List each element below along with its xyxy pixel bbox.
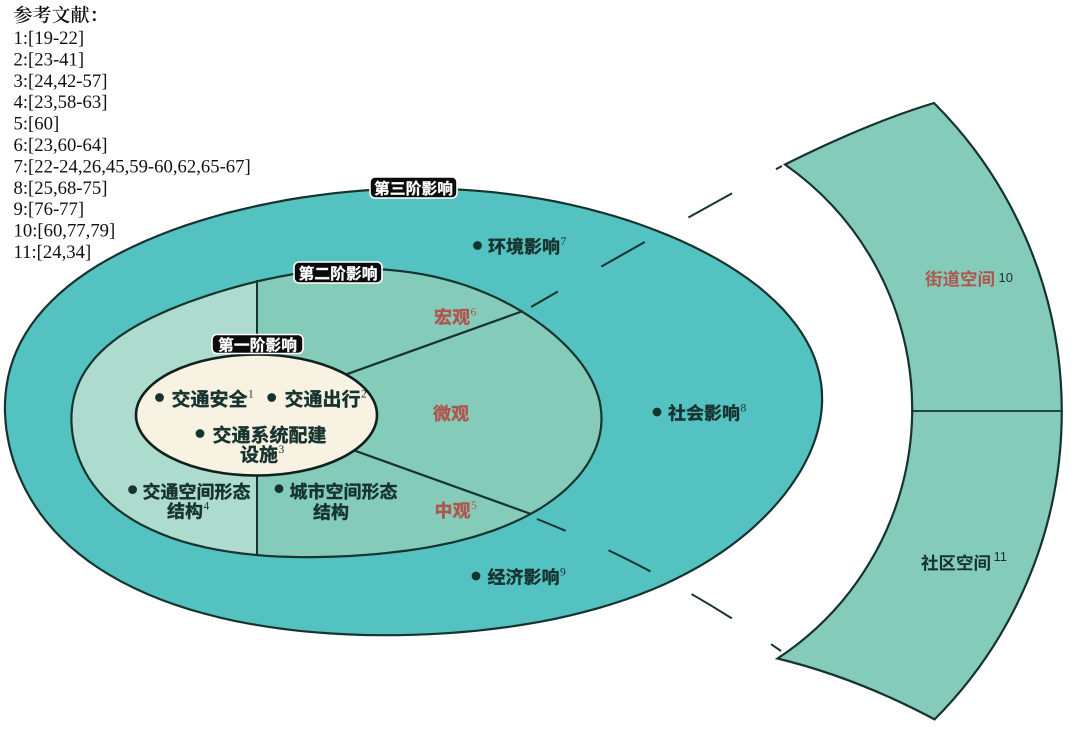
svg-text:5: 5 — [471, 500, 477, 512]
svg-text:8: 8 — [741, 403, 747, 415]
svg-text:1: 1 — [248, 389, 254, 401]
svg-text:9: 9 — [560, 567, 566, 579]
svg-text:5:[60]: 5:[60] — [14, 114, 60, 135]
svg-text:10:[60,77,79]: 10:[60,77,79] — [14, 221, 116, 242]
svg-text:6:[23,60-64]: 6:[23,60-64] — [14, 135, 108, 156]
svg-text:9:[76-77]: 9:[76-77] — [14, 199, 85, 220]
svg-text:2: 2 — [361, 389, 367, 401]
svg-text:6: 6 — [471, 307, 477, 319]
svg-text:2:[23-41]: 2:[23-41] — [14, 49, 85, 70]
svg-text:4:[23,58-63]: 4:[23,58-63] — [14, 92, 108, 113]
svg-text:4: 4 — [204, 501, 210, 513]
svg-text:10: 10 — [999, 270, 1013, 285]
svg-text:7:[22-24,26,45,59-60,62,65-67]: 7:[22-24,26,45,59-60,62,65-67] — [14, 156, 251, 177]
svg-text:8:[25,68-75]: 8:[25,68-75] — [14, 178, 108, 199]
svg-text:3: 3 — [279, 444, 285, 456]
svg-text:1:[19-22]: 1:[19-22] — [14, 28, 85, 49]
svg-text:11: 11 — [994, 549, 1008, 564]
svg-text:3:[24,42-57]: 3:[24,42-57] — [14, 71, 108, 92]
svg-text:11:[24,34]: 11:[24,34] — [14, 242, 92, 263]
svg-text:7: 7 — [561, 236, 567, 248]
